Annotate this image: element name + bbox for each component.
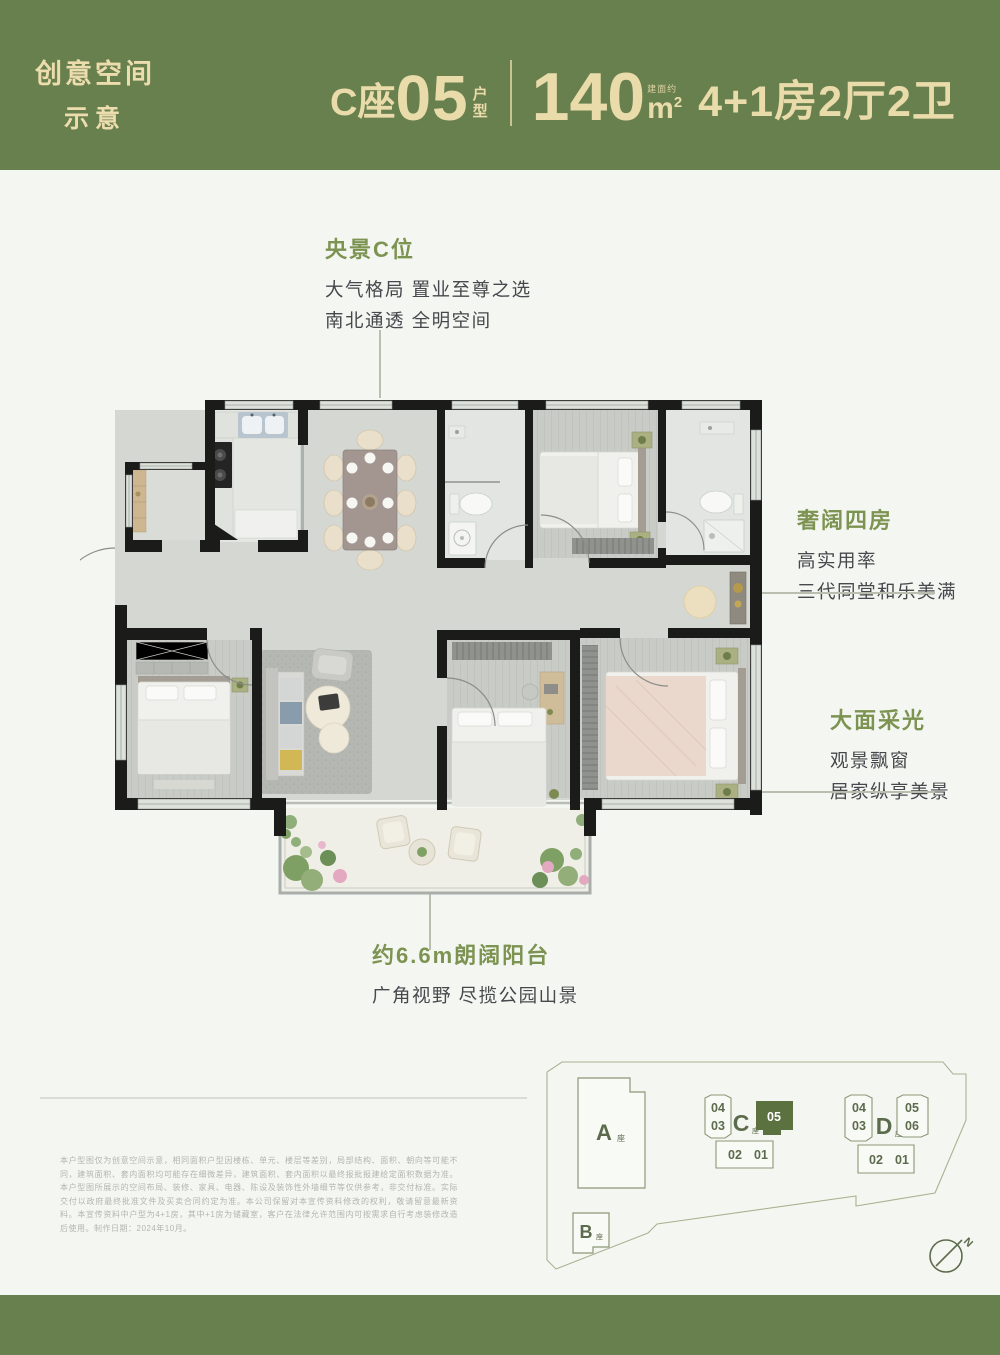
leader-line-center — [379, 330, 381, 398]
floorplan-poster: 创意空间 示意 C座 05 户 型 140 建面约 m2 4+1房2厅2卫 央景… — [0, 0, 1000, 1355]
svg-text:04: 04 — [711, 1101, 725, 1115]
annotation-light-title: 大面采光 — [830, 703, 950, 735]
annotation-light-line1: 观景飘窗 — [830, 745, 950, 776]
unit-type-top: 户 — [473, 86, 488, 103]
svg-text:01: 01 — [754, 1148, 768, 1162]
area-unit-block: 建面约 m2 — [645, 82, 688, 128]
area-value: 140 — [532, 68, 645, 128]
header-band: 创意空间 示意 C座 05 户 型 140 建面约 m2 4+1房2厅2卫 — [0, 0, 1000, 170]
svg-text:06: 06 — [905, 1119, 919, 1133]
floor-plan — [80, 390, 770, 915]
svg-text:03: 03 — [852, 1119, 866, 1133]
unit-number: 05 — [395, 70, 468, 128]
svg-text:04: 04 — [852, 1101, 866, 1115]
svg-text:02: 02 — [869, 1153, 883, 1167]
svg-text:座: 座 — [596, 1232, 603, 1241]
unit-prefix: C座 — [330, 84, 395, 128]
svg-text:01: 01 — [895, 1153, 909, 1167]
building-c-label: C — [733, 1110, 750, 1136]
annotation-center-line2: 南北通透 全明空间 — [325, 305, 532, 336]
brand-block: 创意空间 示意 — [20, 52, 170, 135]
svg-text:03: 03 — [711, 1119, 725, 1133]
compass-icon: N — [930, 1236, 975, 1272]
svg-text:02: 02 — [728, 1148, 742, 1162]
annotation-balcony: 约6.6m朗阔阳台 广角视野 尽揽公园山景 — [372, 938, 579, 1011]
site-plan: A 座 B 座 04 03 C 座 05 02 01 04 03 D 座 05 … — [530, 1050, 1000, 1305]
leader-line-rooms — [760, 592, 935, 594]
annotation-center-line1: 大气格局 置业至尊之选 — [325, 274, 532, 305]
building-b-label: B — [580, 1222, 593, 1242]
footer-band — [0, 1295, 1000, 1355]
layout-spec: 4+1房2厅2卫 — [688, 81, 956, 128]
svg-text:05: 05 — [905, 1101, 919, 1115]
annotation-balcony-line1: 广角视野 尽揽公园山景 — [372, 980, 579, 1011]
annotation-rooms-title: 奢阔四房 — [797, 503, 957, 535]
annotation-rooms-line1: 高实用率 — [797, 545, 957, 576]
title-divider — [510, 60, 512, 126]
leader-line-light — [762, 791, 935, 793]
annotation-balcony-title: 约6.6m朗阔阳台 — [372, 938, 579, 970]
unit-titlebar: C座 05 户 型 140 建面约 m2 4+1房2厅2卫 — [330, 48, 956, 128]
disclaimer-text: 本户型图仅为创意空间示意，相同面积户型因楼栋、单元、楼层等差别，局部结构、面积、… — [60, 1154, 458, 1235]
unit-type-bottom: 型 — [473, 103, 488, 120]
area-note: 建面约 — [647, 82, 677, 95]
svg-text:N: N — [961, 1236, 975, 1250]
building-c-highlight: 05 — [756, 1101, 793, 1135]
svg-text:05: 05 — [767, 1110, 781, 1124]
disclaimer-divider — [40, 1097, 527, 1099]
building-d-label: D — [876, 1113, 893, 1139]
annotation-center: 央景C位 大气格局 置业至尊之选 南北通透 全明空间 — [325, 232, 532, 336]
brand-line1: 创意空间 — [20, 52, 170, 91]
building-a-label: A — [596, 1120, 612, 1145]
area-unit: m2 — [647, 95, 682, 122]
unit-type-stack: 户 型 — [469, 86, 488, 129]
svg-text:座: 座 — [617, 1133, 625, 1143]
brand-line2: 示意 — [20, 99, 170, 135]
annotation-center-title: 央景C位 — [325, 232, 532, 264]
